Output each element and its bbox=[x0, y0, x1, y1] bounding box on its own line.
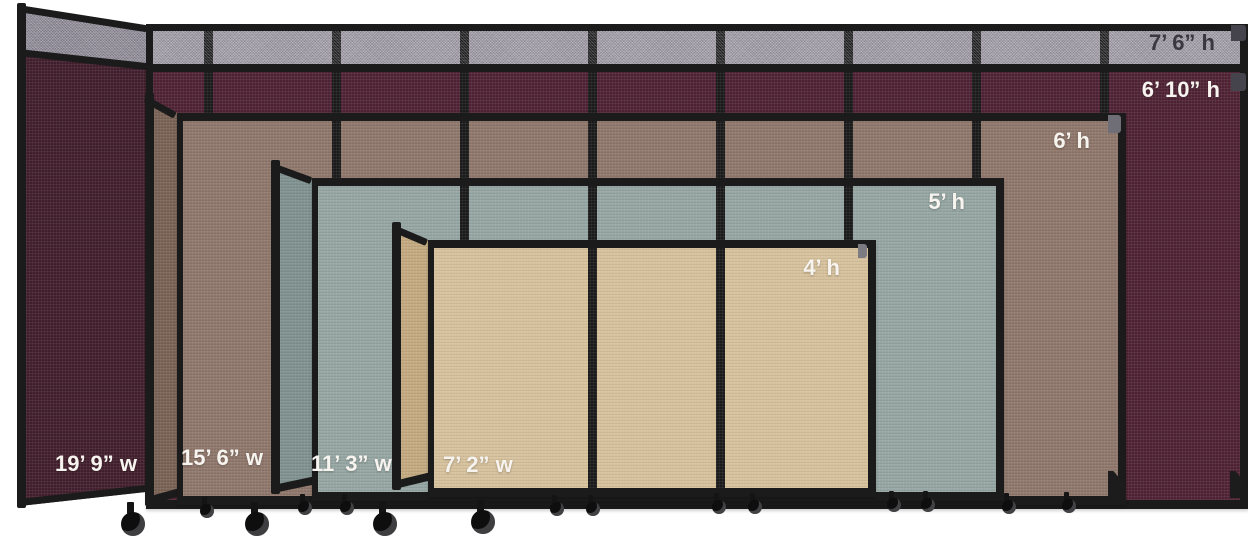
height-label-6ft: 6’ h bbox=[1053, 130, 1090, 152]
caster-icon bbox=[885, 491, 903, 512]
caster-icon bbox=[548, 495, 566, 516]
caster-icon bbox=[372, 502, 390, 536]
width-label-7ft2: 7’ 2” w bbox=[443, 454, 513, 476]
height-label-4ft: 4’ h bbox=[803, 257, 840, 279]
caster-icon bbox=[244, 502, 262, 536]
width-label-15ft6: 15’ 6” w bbox=[181, 447, 263, 469]
wall-bracket-icon bbox=[1231, 73, 1246, 91]
width-label-19ft9: 19’ 9” w bbox=[55, 453, 137, 475]
wall-bracket-icon bbox=[1108, 115, 1121, 133]
corner-post bbox=[271, 160, 280, 494]
corner-post bbox=[392, 222, 401, 490]
wall-bracket-icon bbox=[858, 244, 867, 258]
caster-icon bbox=[1060, 492, 1078, 513]
caster-icon bbox=[1000, 493, 1018, 514]
width-label-11ft3: 11’ 3” w bbox=[311, 453, 392, 475]
caster-icon bbox=[584, 495, 602, 516]
caster-icon bbox=[919, 491, 937, 512]
caster-icon bbox=[710, 493, 728, 514]
height-label-5ft: 5’ h bbox=[928, 191, 965, 213]
caster-icon bbox=[198, 497, 216, 518]
caster-icon bbox=[470, 500, 488, 534]
caster-icon bbox=[746, 493, 764, 514]
wall-bracket-icon bbox=[1231, 25, 1246, 41]
corner-post bbox=[17, 46, 26, 508]
height-label-6ft10: 6’ 10” h bbox=[1142, 79, 1220, 101]
caster-icon bbox=[338, 494, 356, 515]
panel-divider bbox=[716, 248, 725, 488]
corner-post bbox=[145, 93, 154, 506]
caster-icon bbox=[120, 502, 138, 536]
end-panel bbox=[20, 50, 146, 506]
panel-divider bbox=[588, 248, 597, 488]
caster-icon bbox=[296, 494, 314, 515]
scene: 7’ 6” h 6’ 10” h 6’ h 5’ h 4’ h 19’ 9” w… bbox=[0, 0, 1248, 542]
height-label-7ft6: 7’ 6” h bbox=[1149, 32, 1215, 54]
